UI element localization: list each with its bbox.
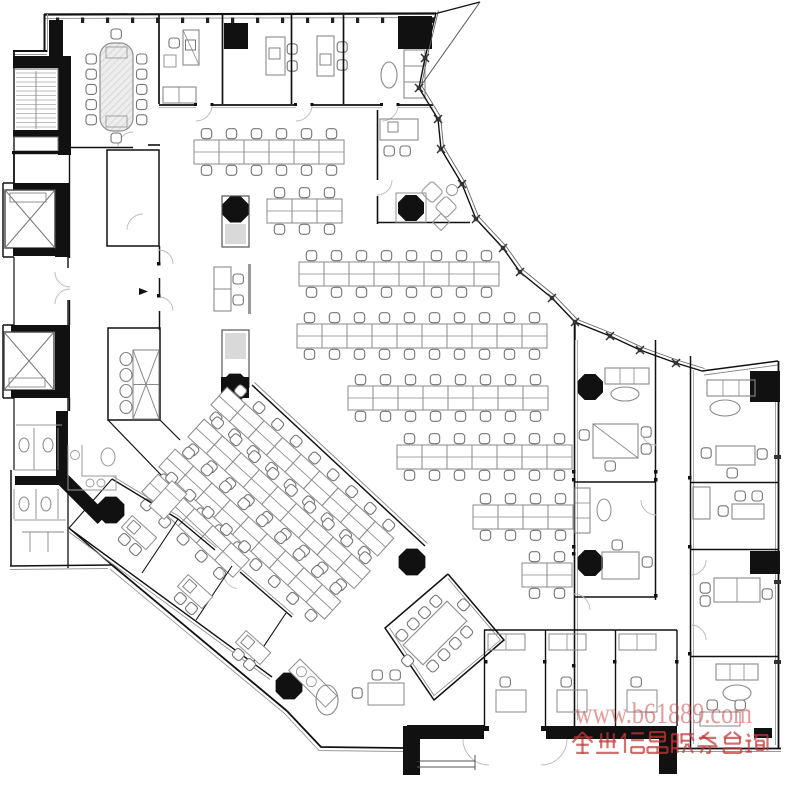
svg-text:www.b61889.com: www.b61889.com xyxy=(575,697,752,730)
